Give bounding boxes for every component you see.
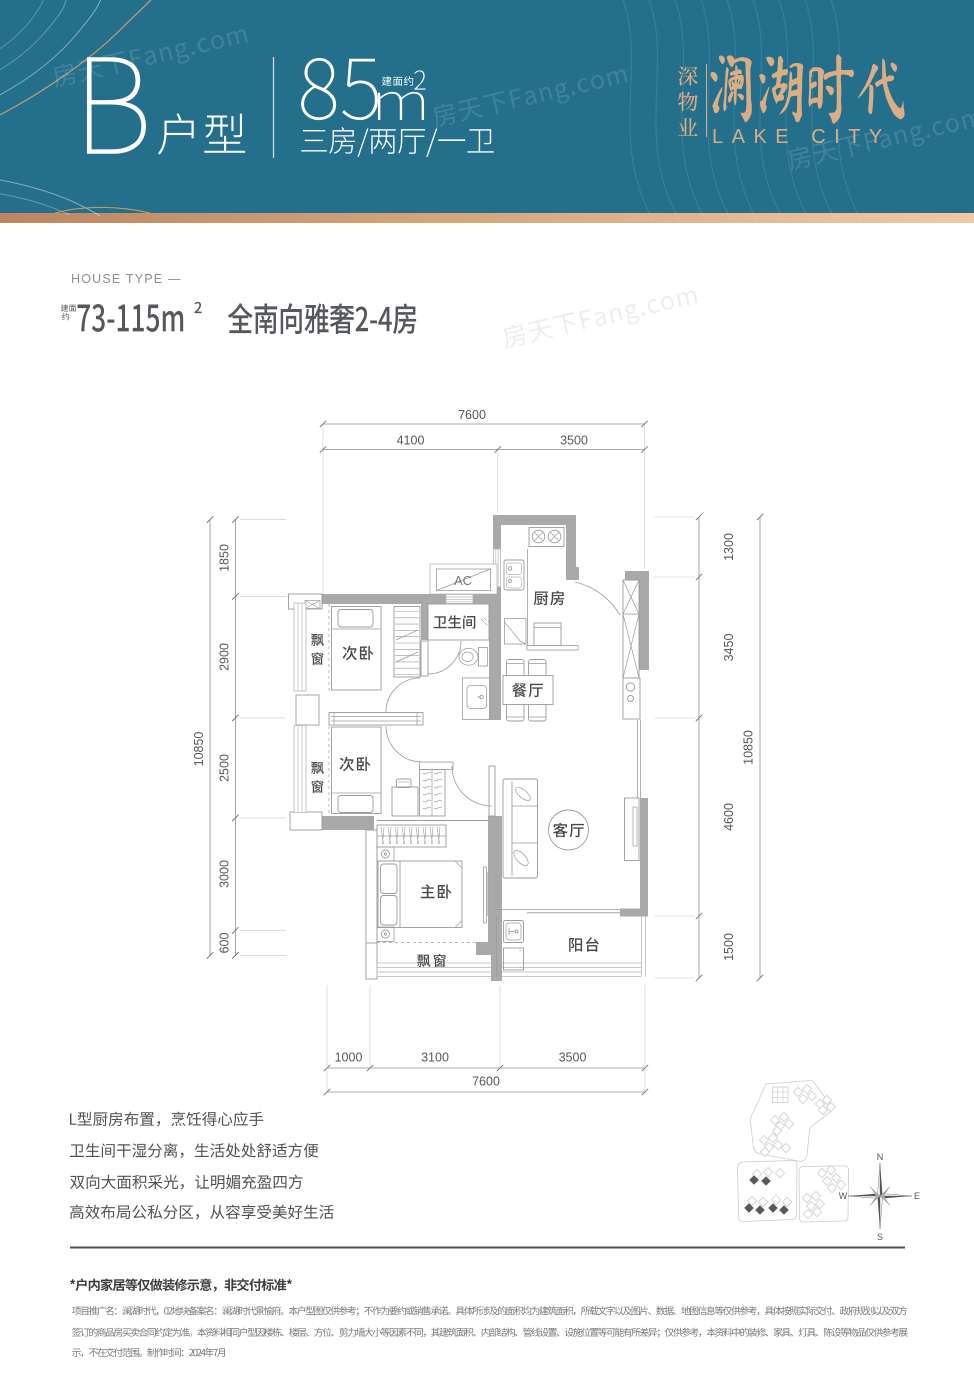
svg-text:AC: AC (454, 573, 472, 588)
svg-text:3100: 3100 (421, 1051, 449, 1065)
svg-text:HOUSE TYPE —: HOUSE TYPE — (71, 272, 182, 286)
svg-text:3450: 3450 (722, 634, 736, 662)
svg-text:600: 600 (218, 933, 232, 954)
svg-text:1500: 1500 (722, 933, 736, 961)
svg-text:10850: 10850 (192, 732, 206, 767)
svg-text:W: W (839, 1191, 848, 1201)
svg-text:3500: 3500 (560, 434, 588, 448)
svg-text:N: N (877, 1152, 884, 1162)
svg-text:3000: 3000 (218, 860, 232, 888)
svg-text:7600: 7600 (472, 1075, 500, 1089)
svg-text:S: S (877, 1232, 883, 1242)
svg-text:E: E (914, 1191, 920, 1201)
svg-text:10850: 10850 (742, 730, 756, 765)
svg-text:2900: 2900 (218, 643, 232, 671)
svg-text:1300: 1300 (722, 533, 736, 561)
svg-text:2500: 2500 (218, 754, 232, 782)
svg-text:1850: 1850 (218, 544, 232, 572)
svg-text:1000: 1000 (335, 1051, 363, 1065)
svg-text:4100: 4100 (397, 434, 425, 448)
svg-text:4600: 4600 (722, 803, 736, 831)
svg-text:LAKE CITY: LAKE CITY (712, 126, 891, 148)
svg-text:3500: 3500 (559, 1051, 587, 1065)
svg-text:7600: 7600 (458, 408, 486, 422)
